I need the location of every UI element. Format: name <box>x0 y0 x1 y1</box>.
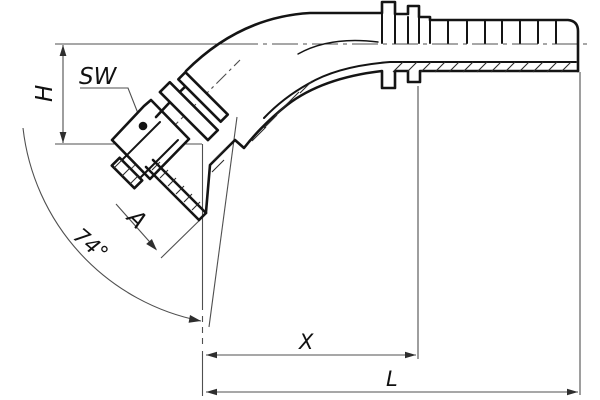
label-x: X <box>298 330 314 354</box>
a-arrow-icon <box>146 239 157 251</box>
label-sw: SW <box>79 64 118 90</box>
arc-arrow-icon <box>189 315 201 323</box>
label-h: H <box>32 85 58 102</box>
collar-tab-edges <box>382 14 419 43</box>
drawing-canvas: SW H A 74° X L <box>0 0 600 400</box>
h-arrow-down-icon <box>60 132 67 143</box>
fitting-drawing <box>112 2 578 220</box>
inner-top-line <box>298 41 378 55</box>
technical-drawing: SW H A 74° X L <box>0 0 600 400</box>
angle-leg-line <box>209 117 237 327</box>
x-arrow-left-icon <box>206 352 217 358</box>
label-a: A <box>120 203 151 234</box>
angle-arc <box>23 128 201 321</box>
barb-serrations <box>430 20 556 43</box>
cone-flank-2 <box>153 160 206 213</box>
l-arrow-right-icon <box>567 389 578 395</box>
h-arrow-up-icon <box>60 45 67 56</box>
l-arrow-left-icon <box>206 389 217 395</box>
label-angle: 74° <box>69 223 113 265</box>
cone-flank-1 <box>146 167 199 220</box>
sw-face-dot <box>139 122 148 131</box>
label-l: L <box>386 367 398 391</box>
x-arrow-right-icon <box>405 352 416 358</box>
lower-outline <box>206 71 578 212</box>
